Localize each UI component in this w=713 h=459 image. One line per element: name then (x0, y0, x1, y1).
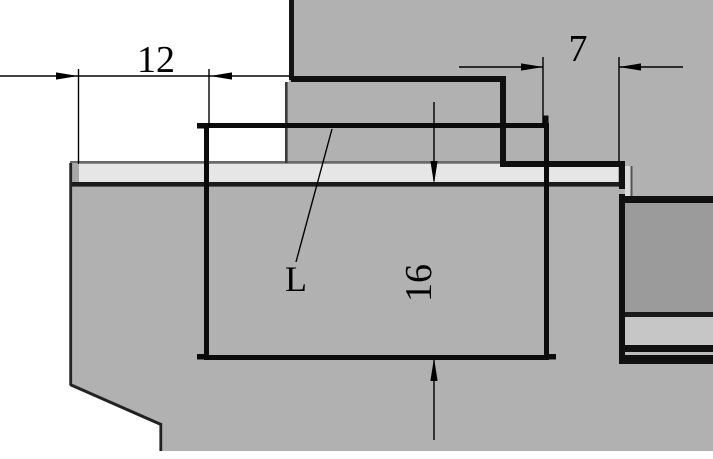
gauge-corner-nub-tl (197, 123, 206, 129)
step-face (625, 166, 631, 196)
strip-top-edge (70, 161, 506, 164)
dim-16-label: 16 (398, 264, 440, 302)
chamfer-bottom-edge (159, 423, 162, 451)
right-part-mid-line (625, 312, 713, 317)
right-part-bottom-edge (621, 355, 713, 364)
right-part-groove-gap (625, 352, 713, 355)
strip-bottom-edge (70, 182, 620, 187)
gauge-corner-nub-tr (543, 116, 549, 126)
gauge-corner-nub-br (547, 354, 556, 360)
right-part-top-edge (622, 196, 713, 203)
dim-12-label: 12 (137, 39, 175, 81)
upper-block-left-edge (289, 0, 294, 80)
drawing-canvas: 12 7 16 L (0, 0, 713, 459)
right-part-lower-fill (625, 317, 713, 345)
tongue-left-edge (285, 82, 288, 163)
right-part-groove-line (623, 345, 713, 352)
dim-7-label: 7 (569, 28, 588, 70)
right-part-upper-fill (625, 203, 713, 313)
body-left-edge (69, 163, 72, 385)
gauge-corner-nub-bl (197, 354, 206, 360)
section-drawing-svg: 12 7 16 L (0, 0, 713, 459)
leader-l-label: L (285, 259, 307, 299)
right-part-left-edge (619, 194, 625, 364)
step-face-edge (631, 166, 633, 197)
